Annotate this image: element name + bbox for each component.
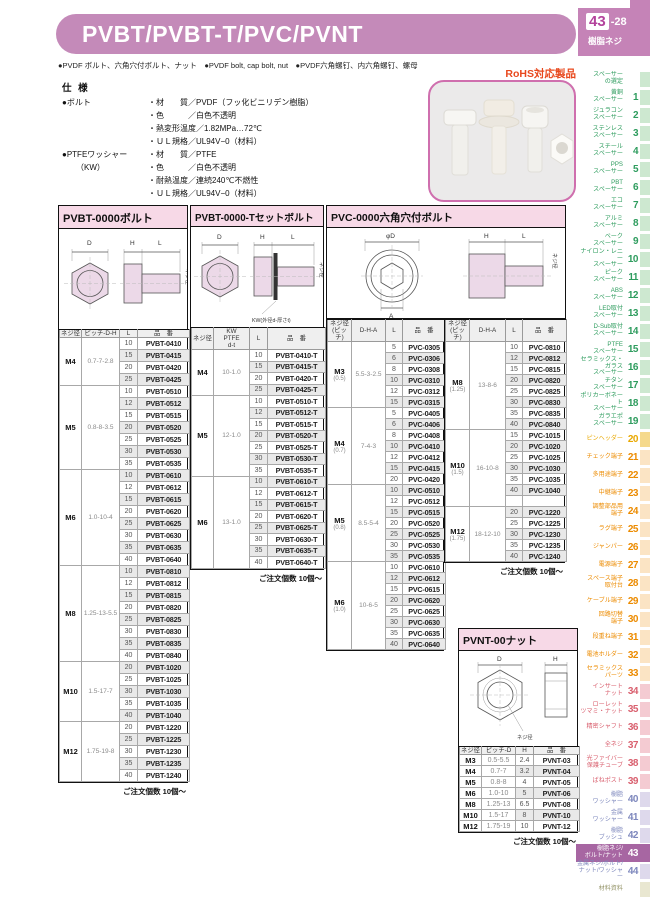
col-header: L: [506, 320, 523, 342]
col-header: ネジ径 (ピッチ): [328, 320, 352, 342]
dim-label-h: H: [484, 233, 489, 240]
part-number-cell: PVBT-0525: [138, 434, 190, 446]
length-cell: 10: [506, 342, 523, 353]
sidebar-item[interactable]: スペース端子 取付台28: [576, 574, 650, 592]
length-cell: 25: [120, 374, 138, 386]
sidebar-item-number: 5: [623, 164, 638, 175]
sidebar-item-label: アルミ スペーサー: [576, 216, 623, 229]
sidebar-item-label: チェック端子: [576, 454, 623, 461]
length-cell: 40: [120, 650, 138, 662]
sidebar-item[interactable]: チェック端子21: [576, 448, 650, 466]
sidebar-item-number: 18: [623, 398, 638, 409]
sidebar-item[interactable]: PBT スペーサー6: [576, 178, 650, 196]
table-row: M81.25-13-5.510PVBT-0810: [60, 566, 190, 578]
sidebar-item[interactable]: ABS スペーサー12: [576, 286, 650, 304]
part-number-cell: PVBT-0625: [138, 518, 190, 530]
length-cell: 8: [386, 430, 403, 441]
sidebar-nav: スペーサー の選定黄銅 スペーサー1ジュラコン スペーサー2ステンレス スペーサ…: [576, 70, 650, 898]
sidebar-item[interactable]: ジャンパー26: [576, 538, 650, 556]
sidebar-tab: [640, 324, 650, 339]
sidebar-tab: [640, 144, 650, 159]
sidebar-item-number: 31: [623, 632, 638, 643]
sidebar-item[interactable]: ガラエポ スペーサー19: [576, 412, 650, 430]
table-row: M10(1.5)16-10-815PVC-1015: [446, 430, 567, 441]
part-number-cell: PVBT-1025: [138, 674, 190, 686]
part-number-cell: PVBT-0640: [138, 554, 190, 566]
part-number-cell: PVBT-0612: [138, 482, 190, 494]
part-number-cell: PVBT-0415: [138, 350, 190, 362]
spec-group-washer: ●PTFEワッシャー （KW） ・材 質／PTFE ・色 ／白色不透明 ・耐熱温…: [62, 148, 382, 200]
sidebar-item[interactable]: ケーブル端子29: [576, 592, 650, 610]
dimensions-cell: 16-10-8: [470, 430, 506, 507]
length-cell: 35: [250, 545, 268, 557]
sidebar-item-label: ローレット ツマミ・ナット: [576, 702, 623, 715]
part-number-cell: PVBT-0615: [138, 494, 190, 506]
sidebar-tab: [640, 126, 650, 141]
length-cell: 20: [250, 430, 268, 442]
part-number-cell: PVC-0412: [403, 452, 446, 463]
part-number-cell: PVC-0535: [403, 551, 446, 562]
thread-size-cell: M6: [460, 788, 482, 799]
chapter-number: 43: [586, 13, 609, 30]
length-cell: 20: [120, 722, 138, 734]
table-row: M4(0.7)7-4-35PVC-0405: [328, 408, 446, 419]
part-number-cell: PVBT-0610-T: [268, 476, 326, 488]
part-number-cell: PVC-0815: [523, 364, 567, 375]
height-cell: 5: [516, 788, 534, 799]
length-cell: 15: [120, 494, 138, 506]
length-cell: [506, 496, 523, 507]
sidebar-item[interactable]: 電源端子27: [576, 556, 650, 574]
part-number-cell: PVC-1040: [523, 485, 567, 496]
thread-size-cell: M4: [192, 350, 214, 396]
part-number-cell: PVBT-1035: [138, 698, 190, 710]
part-number-cell: PVBT-0615-T: [268, 499, 326, 511]
part-number-cell: PVBT-0420-T: [268, 373, 326, 385]
table-row: M5(0.8)8.5-5-410PVC-0510: [328, 485, 446, 496]
part-number-cell: PVBT-0630-T: [268, 534, 326, 546]
sidebar-tab: [640, 756, 650, 771]
height-cell: 10: [516, 821, 534, 832]
thread-size-cell: M8: [460, 799, 482, 810]
sidebar-item[interactable]: ラグ端子25: [576, 520, 650, 538]
length-cell: 20: [386, 518, 403, 529]
sidebar-item[interactable]: 金属ネジ/ボルト/ ナット/ワッシャー44: [576, 862, 650, 880]
length-cell: 25: [120, 518, 138, 530]
thread-size-cell: M6: [192, 476, 214, 568]
sidebar-item[interactable]: スペーサー の選定: [576, 70, 650, 88]
sidebar-tab: [640, 342, 650, 357]
sidebar-item-number: 43: [623, 848, 638, 859]
length-cell: 30: [120, 530, 138, 542]
sidebar-item-label: スペース端子 取付台: [576, 576, 623, 589]
sidebar-item[interactable]: 材料資料: [576, 880, 650, 898]
sidebar-item[interactable]: ステンレス スペーサー3: [576, 124, 650, 142]
dimensions-cell: 0.8-8-3.5: [82, 386, 120, 470]
length-cell: 12: [386, 573, 403, 584]
dimensions-cell: 0.7-7-2.8: [82, 338, 120, 386]
sidebar-item[interactable]: 金属 ワッシャー41: [576, 808, 650, 826]
length-cell: 15: [386, 584, 403, 595]
part-number-cell: PVNT-05: [534, 777, 580, 788]
pvc-left-group: ネジ径 (ピッチ) D-H-A L 品 番 M3(0.5)5.5-3-2.55P…: [326, 318, 444, 651]
table-row: M3(0.5)5.5-3-2.55PVC-0305: [328, 342, 446, 353]
part-number-cell: PVC-0825: [523, 386, 567, 397]
part-number-cell: PVBT-0610: [138, 470, 190, 482]
sidebar-item[interactable]: 樹脂 ブッシュ42: [576, 826, 650, 844]
col-header: L: [386, 320, 403, 342]
spec-line: ・色 ／白色不透明: [148, 161, 262, 174]
part-number-cell: PVC-0515: [403, 507, 446, 518]
sidebar-item-label: ピーク スペーサー: [576, 270, 623, 283]
part-number-cell: PVC-0520: [403, 518, 446, 529]
length-cell: 12: [386, 452, 403, 463]
sidebar-item[interactable]: ピンヘッダー20: [576, 430, 650, 448]
sidebar-item-number: 13: [623, 308, 638, 319]
sidebar-tab: [640, 504, 650, 519]
sidebar-item-label: 段重ね端子: [576, 634, 623, 641]
length-cell: 40: [120, 770, 138, 782]
part-number-cell: [523, 496, 567, 507]
sidebar-item[interactable]: スチール スペーサー4: [576, 142, 650, 160]
table-row: M61.0-10-410PVBT-0610: [60, 470, 190, 482]
length-cell: 35: [120, 542, 138, 554]
length-cell: 30: [120, 686, 138, 698]
part-number-cell: PVC-0530: [403, 540, 446, 551]
part-number-cell: PVBT-0612-T: [268, 488, 326, 500]
order-note: ご注文個数 10個〜: [58, 783, 188, 797]
thread-dia-label: ネジ径: [318, 262, 323, 278]
part-number-cell: PVBT-1235: [138, 758, 190, 770]
sidebar-item[interactable]: 多用途端子22: [576, 466, 650, 484]
part-number-cell: PVBT-0515-T: [268, 419, 326, 431]
length-cell: 20: [386, 474, 403, 485]
part-number-cell: PVC-0415: [403, 463, 446, 474]
sidebar-item-number: 16: [623, 362, 638, 373]
length-cell: 30: [386, 540, 403, 551]
length-cell: 12: [386, 386, 403, 397]
length-cell: 25: [120, 674, 138, 686]
part-number-cell: PVC-1025: [523, 452, 567, 463]
length-cell: 8: [386, 364, 403, 375]
dimensions-cell: 1.5-17-7: [82, 662, 120, 722]
sidebar-item[interactable]: PPS スペーサー5: [576, 160, 650, 178]
hex-bolt-image: [444, 110, 476, 175]
product-description: ●PVDF ボルト、六角穴付ボルト、ナット ●PVDF bolt, cap bo…: [58, 60, 478, 71]
sidebar-tab: [640, 90, 650, 105]
pvbt-t-table: ネジ径 KW PTFE d-t L 品 番 M410-1.010PVBT-041…: [191, 327, 326, 569]
sidebar-tab: [640, 612, 650, 627]
dim-label-h: H: [130, 240, 135, 247]
length-cell: 12: [506, 353, 523, 364]
length-cell: 25: [506, 386, 523, 397]
sidebar-item[interactable]: セラミックス・ガラス スペーサー16: [576, 358, 650, 376]
height-cell: 2.4: [516, 755, 534, 766]
col-header: 品 番: [523, 320, 567, 342]
sidebar-item-number: 3: [623, 128, 638, 139]
part-number-cell: PVC-0810: [523, 342, 567, 353]
spec-group-label: ●PTFEワッシャー: [62, 148, 148, 161]
part-number-cell: PVC-0405: [403, 408, 446, 419]
thread-size-cell: M10: [460, 810, 482, 821]
sidebar-tab: [640, 792, 650, 807]
length-cell: 15: [250, 361, 268, 373]
sidebar-item-number: 25: [623, 524, 638, 535]
sidebar-item[interactable]: 全ネジ37: [576, 736, 650, 754]
dim-label-d: D: [87, 240, 92, 247]
part-number-cell: PVBT-0815: [138, 590, 190, 602]
pvbt-t-title: PVBT-0000-Tセットボルト: [191, 206, 323, 227]
sidebar-item-number: 12: [623, 290, 638, 301]
table-row: M101.5-17-720PVBT-1020: [60, 662, 190, 674]
sidebar-item-label: 電源端子: [576, 562, 623, 569]
dimensions-cell: 1.5-17: [482, 810, 516, 821]
pvnt-title: PVNT-00ナット: [459, 629, 577, 651]
length-cell: 20: [506, 375, 523, 386]
order-note: ご注文個数 10個〜: [458, 833, 578, 847]
table-row: M121.75-19-820PVBT-1220: [60, 722, 190, 734]
thread-size-cell: M4(0.7): [328, 408, 352, 485]
sidebar-item[interactable]: セラミックス パーツ33: [576, 664, 650, 682]
sidebar-item-number: 42: [623, 830, 638, 841]
sidebar-item-label: 樹脂 ブッシュ: [576, 828, 623, 841]
sidebar-item-label: エコ スペーサー: [576, 198, 623, 211]
product-photo: [428, 80, 576, 202]
sidebar-item-number: 4: [623, 146, 638, 157]
page-number-suffix: -28: [611, 16, 627, 28]
sidebar-tab: [640, 72, 650, 87]
height-cell: 8: [516, 810, 534, 821]
thread-size-cell: M3: [460, 755, 482, 766]
length-cell: 35: [506, 408, 523, 419]
dimensions-cell: 10-6-5: [352, 562, 386, 650]
part-number-cell: PVBT-0820: [138, 602, 190, 614]
pvc-table-block: PVC-0000六角穴付ボルト φD A H L ネジ径: [326, 205, 566, 320]
length-cell: 40: [386, 639, 403, 650]
sidebar-tab: [640, 306, 650, 321]
length-cell: 12: [120, 578, 138, 590]
part-number-cell: PVC-1225: [523, 518, 567, 529]
sidebar-item-label: 樹脂 ワッシャー: [576, 792, 623, 805]
length-cell: 35: [120, 458, 138, 470]
part-number-cell: PVBT-1220: [138, 722, 190, 734]
length-cell: 40: [250, 557, 268, 569]
thread-size-cell: M3(0.5): [328, 342, 352, 408]
sidebar-item[interactable]: 段重ね端子31: [576, 628, 650, 646]
sidebar-item-number: 20: [623, 434, 638, 445]
sidebar-item-number: 40: [623, 794, 638, 805]
table-row: M81.25-136.5PVNT-08: [460, 799, 580, 810]
sidebar-tab: [640, 396, 650, 411]
sidebar-item[interactable]: ジュラコン スペーサー2: [576, 106, 650, 124]
sidebar-item[interactable]: エコ スペーサー7: [576, 196, 650, 214]
sidebar-tab: [640, 288, 650, 303]
sidebar-item-number: 36: [623, 722, 638, 733]
part-number-cell: PVBT-1030: [138, 686, 190, 698]
sidebar-item[interactable]: ばねポスト39: [576, 772, 650, 790]
sidebar-item-label: 金属 ワッシャー: [576, 810, 623, 823]
thread-size-cell: M5: [60, 386, 82, 470]
part-number-cell: PVBT-0812: [138, 578, 190, 590]
order-note: ご注文個数 10個〜: [190, 570, 324, 584]
col-header: ネジ径: [192, 328, 214, 350]
sidebar-item[interactable]: 回路切替 端子30: [576, 610, 650, 628]
length-cell: 25: [506, 518, 523, 529]
sidebar-item[interactable]: ポリカーボネート スペーサー18: [576, 394, 650, 412]
sidebar-tab: [640, 180, 650, 195]
rohs-label: RoHS対応製品: [430, 66, 576, 81]
pvc-diagram: φD A H L ネジ径: [327, 228, 565, 320]
col-header: KW PTFE d-t: [214, 328, 250, 350]
sidebar-item[interactable]: 電池ホルダー32: [576, 646, 650, 664]
length-cell: 20: [506, 441, 523, 452]
sidebar-item[interactable]: 中継端子23: [576, 484, 650, 502]
part-number-cell: PVC-0305: [403, 342, 446, 353]
sidebar-tab: [640, 522, 650, 537]
sidebar-item[interactable]: 調整部品用 端子24: [576, 502, 650, 520]
sidebar-item-label: セラミックス・ガラス スペーサー: [576, 357, 623, 377]
sidebar-item[interactable]: 光ファイバー 保護チューブ38: [576, 754, 650, 772]
part-number-cell: PVC-1240: [523, 551, 567, 562]
part-number-cell: PVNT-06: [534, 788, 580, 799]
length-cell: 15: [506, 364, 523, 375]
spec-group-label: ●ボルト: [62, 96, 148, 109]
sidebar-item[interactable]: ローレット ツマミ・ナット35: [576, 700, 650, 718]
table-row: M8(1.25)13-8-610PVC-0810: [446, 342, 567, 353]
length-cell: 20: [120, 662, 138, 674]
length-cell: 20: [386, 595, 403, 606]
pvbt-table: ネジ径 ピッチ-D-H L 品 番 M40.7-7-2.810PVBT-0410…: [59, 329, 190, 782]
length-cell: 10: [120, 470, 138, 482]
pvbt-title: PVBT-0000ボルト: [59, 206, 187, 229]
part-number-cell: PVBT-0810: [138, 566, 190, 578]
part-number-cell: PVC-0315: [403, 397, 446, 408]
table-row: M40.7-7-2.810PVBT-0410: [60, 338, 190, 350]
part-number-cell: PVC-1015: [523, 430, 567, 441]
sidebar-item-label: ジュラコン スペーサー: [576, 108, 623, 121]
sidebar-item-label: ラグ端子: [576, 526, 623, 533]
dim-label-d: D: [497, 656, 502, 663]
length-cell: 10: [120, 566, 138, 578]
sidebar-item-label: 中継端子: [576, 490, 623, 497]
length-cell: 35: [386, 628, 403, 639]
sidebar-tab: [640, 630, 650, 645]
part-number-cell: PVBT-1225: [138, 734, 190, 746]
length-cell: 25: [120, 734, 138, 746]
sidebar-item-number: 44: [623, 866, 638, 877]
length-cell: 15: [250, 499, 268, 511]
sidebar-item-number: 26: [623, 542, 638, 553]
sidebar-item-number: 34: [623, 686, 638, 697]
length-cell: 12: [250, 407, 268, 419]
part-number-cell: PVBT-0530-T: [268, 453, 326, 465]
kw-note-label: KW(外径d-厚さt): [252, 316, 291, 324]
length-cell: 15: [386, 507, 403, 518]
part-number-cell: PVBT-0620: [138, 506, 190, 518]
pvc-right-table: ネジ径 (ピッチ) D-H-A L 品 番 M8(1.25)13-8-610PV…: [445, 319, 567, 562]
sidebar-tab: [640, 378, 650, 393]
dimensions-cell: 0.5-5.5: [482, 755, 516, 766]
sidebar-item-label: D-Sub取付 スペーサー: [576, 324, 623, 337]
sidebar-item-number: 9: [623, 236, 638, 247]
sidebar-item-label: 金属ネジ/ボルト/ ナット/ワッシャー: [576, 861, 623, 881]
part-number-cell: PVC-0306: [403, 353, 446, 364]
sidebar-item[interactable]: ピーク スペーサー11: [576, 268, 650, 286]
sidebar-item-number: 33: [623, 668, 638, 679]
part-number-cell: PVBT-0625-T: [268, 522, 326, 534]
part-number-cell: PVBT-0835: [138, 638, 190, 650]
sidebar-item[interactable]: D-Sub取付 スペーサー14: [576, 322, 650, 340]
sidebar-item[interactable]: アルミ スペーサー8: [576, 214, 650, 232]
length-cell: 6: [386, 353, 403, 364]
length-cell: 35: [250, 465, 268, 477]
part-number-cell: PVC-0512: [403, 496, 446, 507]
length-cell: 10: [386, 441, 403, 452]
length-cell: 10: [120, 386, 138, 398]
table-row: M50.8-84PVNT-05: [460, 777, 580, 788]
dim-label-l: L: [158, 240, 162, 247]
dim-label-dia: φD: [386, 233, 395, 240]
table-row: M12(1.75)18-12-1020PVC-1220: [446, 507, 567, 518]
sidebar-item[interactable]: インサート ナット34: [576, 682, 650, 700]
spec-heading: 仕 様: [62, 80, 382, 94]
thread-size-cell: M10(1.5): [446, 430, 470, 507]
length-cell: 15: [120, 410, 138, 422]
sidebar-item[interactable]: 黄銅 スペーサー1: [576, 88, 650, 106]
pvnt-table: ネジ径 ピッチ-D H 品 番 M30.5-5.52.4PVNT-03M40.7…: [459, 746, 580, 832]
part-number-cell: PVC-0615: [403, 584, 446, 595]
length-cell: 15: [120, 590, 138, 602]
part-number-cell: PVC-0840: [523, 419, 567, 430]
pvbt-t-table-block: PVBT-0000-Tセットボルト D H L ネジ径 KW(外径d-厚さt): [190, 205, 324, 584]
part-number-cell: PVBT-0520: [138, 422, 190, 434]
sidebar-item-number: 37: [623, 740, 638, 751]
length-cell: 10: [250, 396, 268, 408]
part-number-cell: PVNT-10: [534, 810, 580, 821]
product-photo-art: [430, 82, 574, 200]
col-header: ネジ径: [60, 330, 82, 338]
sidebar-tab: [640, 162, 650, 177]
length-cell: 25: [386, 529, 403, 540]
thread-size-cell: M4: [60, 338, 82, 386]
sidebar-item[interactable]: 樹脂 ワッシャー40: [576, 790, 650, 808]
sidebar-tab: [640, 702, 650, 717]
part-number-cell: PVC-0406: [403, 419, 446, 430]
length-cell: 20: [250, 511, 268, 523]
sidebar-item[interactable]: LED取付 スペーサー13: [576, 304, 650, 322]
sidebar-item[interactable]: ナイロン・レニー スペーサー10: [576, 250, 650, 268]
sidebar-item-number: 28: [623, 578, 638, 589]
thread-size-cell: M10: [60, 662, 82, 722]
spec-group-bolt: ●ボルト ・材 質／PVDF（フッ化ビニリデン樹脂） ・色 ／白色不透明 ・熱変…: [62, 96, 382, 148]
col-header: D-H-A: [352, 320, 386, 342]
table-row: M40.7-73.2PVNT-04: [460, 766, 580, 777]
pvbt-t-diagram: D H L ネジ径 KW(外径d-厚さt): [191, 227, 323, 327]
length-cell: 40: [506, 419, 523, 430]
table-row: M101.5-178PVNT-10: [460, 810, 580, 821]
pvnt-table-block: PVNT-00ナット D H ネジ径 ネジ径: [458, 628, 578, 847]
sidebar-item[interactable]: 精密シャフト36: [576, 718, 650, 736]
length-cell: 40: [120, 554, 138, 566]
length-cell: 20: [250, 373, 268, 385]
sidebar-item-label: ABS スペーサー: [576, 288, 623, 301]
col-header: 品 番: [138, 330, 190, 338]
part-number-cell: PVBT-0515: [138, 410, 190, 422]
sidebar-item-number: 29: [623, 596, 638, 607]
dim-label-d: D: [217, 234, 222, 241]
sidebar-item-number: 7: [623, 200, 638, 211]
thread-dia-label: ネジ径: [517, 733, 533, 741]
